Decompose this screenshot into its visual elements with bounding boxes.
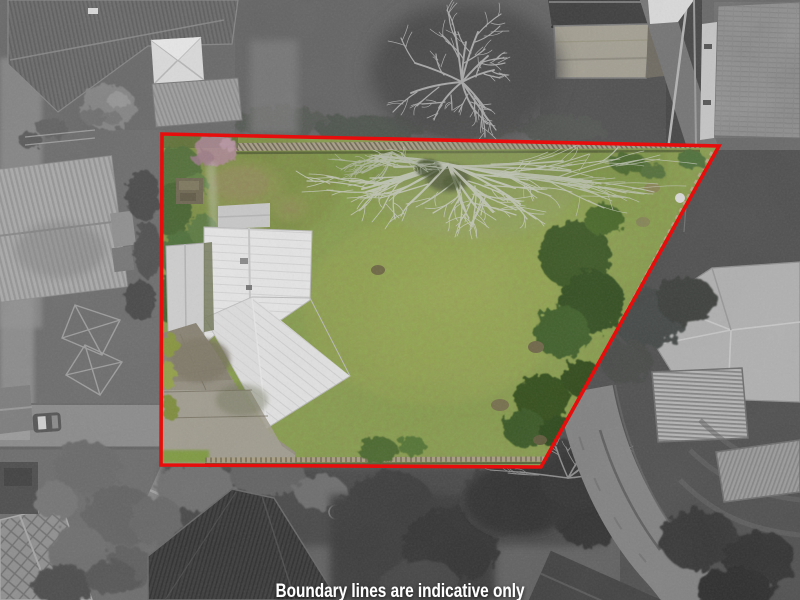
- svg-text:Boundary lines are indicative: Boundary lines are indicative only: [276, 580, 525, 600]
